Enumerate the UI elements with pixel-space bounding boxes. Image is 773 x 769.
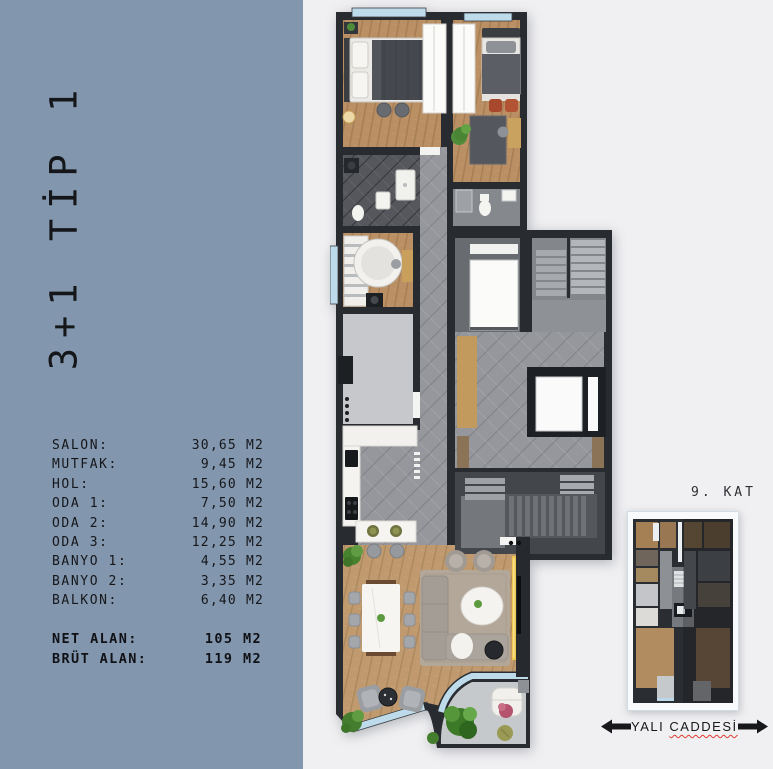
info-panel: 3+1 TİP 1 SALON:30,65 M2 MUTFAK:9,45 M2 … <box>0 0 303 769</box>
key-plan-unit-dimmed <box>683 519 733 703</box>
area-label: BANYO 1: <box>52 552 127 571</box>
area-value: 9,45 M2 <box>201 455 264 474</box>
door-jamb-right <box>592 436 604 468</box>
gross-area-row: BRÜT ALAN:119 M2 <box>52 649 262 669</box>
plan-type-title: 3+1 TİP 1 <box>43 80 86 370</box>
totals-table: NET ALAN:105 M2 BRÜT ALAN:119 M2 <box>52 629 262 669</box>
area-row: MUTFAK:9,45 M2 <box>52 455 264 474</box>
area-label: ODA 1: <box>52 494 109 513</box>
area-value: 6,40 M2 <box>201 591 264 610</box>
area-row: ODA 1:7,50 M2 <box>52 494 264 513</box>
area-value: 3,35 M2 <box>201 572 264 591</box>
elevator-2 <box>527 367 606 437</box>
corridor-floor <box>420 147 447 452</box>
net-area-row: NET ALAN:105 M2 <box>52 629 262 649</box>
area-row: BANYO 1:4,55 M2 <box>52 552 264 571</box>
floor-plan-image <box>330 6 646 754</box>
area-label: ODA 3: <box>52 533 109 552</box>
area-row: HOL:15,60 M2 <box>52 475 264 494</box>
area-row: BALKON:6,40 M2 <box>52 591 264 610</box>
street-name: YALI CADDESİ <box>631 719 738 734</box>
area-value: 30,65 M2 <box>192 436 264 455</box>
area-row: ODA 2:14,90 M2 <box>52 514 264 533</box>
area-value: 14,90 M2 <box>192 514 264 533</box>
area-value: 12,25 M2 <box>192 533 264 552</box>
key-plan-image <box>627 511 739 711</box>
area-value: 4,55 M2 <box>201 552 264 571</box>
area-label: BANYO 2: <box>52 572 127 591</box>
elevator-1 <box>455 238 520 332</box>
stairwell <box>532 238 606 332</box>
right-arrow-icon <box>738 719 768 734</box>
hall-wood-strip <box>457 336 477 428</box>
area-label: MUTFAK: <box>52 455 118 474</box>
floor-number-label: 9. KAT <box>691 485 756 500</box>
area-label: ODA 2: <box>52 514 109 533</box>
area-label: HOL: <box>52 475 90 494</box>
street-direction: YALI CADDESİ <box>601 719 767 734</box>
area-value: 7,50 M2 <box>201 494 264 513</box>
area-label: SALON: <box>52 436 109 455</box>
area-value: 15,60 M2 <box>192 475 264 494</box>
left-arrow-icon <box>601 719 631 734</box>
room-area-table: SALON:30,65 M2 MUTFAK:9,45 M2 HOL:15,60 … <box>52 436 264 611</box>
area-row: BANYO 2:3,35 M2 <box>52 572 264 591</box>
area-row: ODA 3:12,25 M2 <box>52 533 264 552</box>
area-label: BALKON: <box>52 591 118 610</box>
oda3-floor <box>343 314 413 424</box>
area-row: SALON:30,65 M2 <box>52 436 264 455</box>
door-jamb-left <box>457 436 469 468</box>
